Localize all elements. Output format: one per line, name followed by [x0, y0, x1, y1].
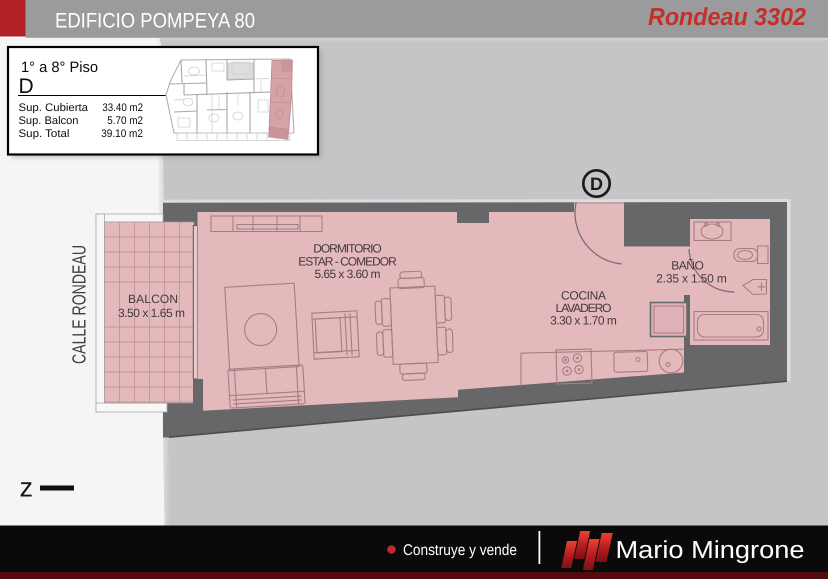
- svg-text:z: z: [20, 473, 34, 503]
- svg-text:BALCON: BALCON: [128, 292, 178, 306]
- svg-text:3.30 x 1.70 m: 3.30 x 1.70 m: [550, 314, 617, 328]
- svg-text:5.70 m2: 5.70 m2: [107, 115, 143, 127]
- svg-text:Construye y vende: Construye y vende: [403, 542, 517, 559]
- svg-text:DORMITORIO: DORMITORIO: [313, 242, 382, 256]
- svg-text:CALLE RONDEAU: CALLE RONDEAU: [70, 245, 91, 364]
- svg-text:Sup. Balcon: Sup. Balcon: [19, 115, 79, 127]
- svg-text:39.10 m2: 39.10 m2: [101, 128, 143, 140]
- svg-text:D: D: [19, 75, 34, 98]
- svg-text:Sup. Total: Sup. Total: [19, 128, 70, 140]
- svg-text:EDIFICIO POMPEYA 80: EDIFICIO POMPEYA 80: [55, 10, 255, 33]
- svg-text:5.65 x 3.60 m: 5.65 x 3.60 m: [315, 267, 381, 281]
- svg-text:3.50 x 1.65 m: 3.50 x 1.65 m: [118, 306, 185, 320]
- svg-text:2.35 x 1.50 m: 2.35 x 1.50 m: [656, 272, 727, 286]
- svg-text:D: D: [590, 174, 603, 194]
- svg-text:Sup. Cubierta: Sup. Cubierta: [19, 102, 89, 114]
- svg-text:Mario Mingrone: Mario Mingrone: [616, 537, 805, 564]
- svg-text:BAÑO: BAÑO: [671, 259, 704, 273]
- svg-text:1° a 8° Piso: 1° a 8° Piso: [21, 59, 98, 76]
- svg-text:Rondeau 3302: Rondeau 3302: [648, 4, 806, 31]
- svg-text:33.40 m2: 33.40 m2: [102, 102, 143, 114]
